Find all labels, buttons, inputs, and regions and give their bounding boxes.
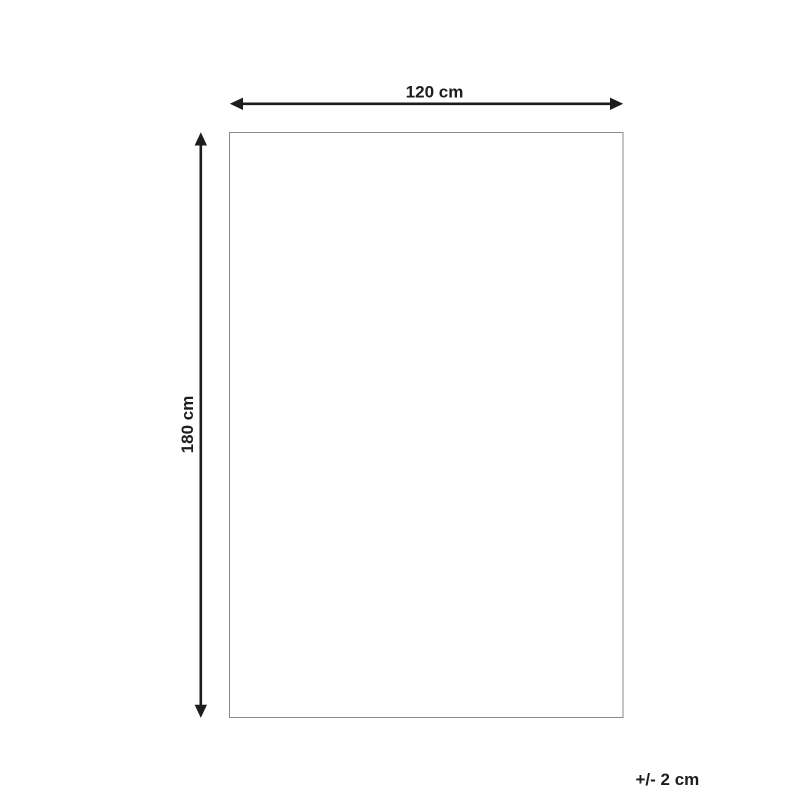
svg-text:120 cm: 120 cm [406, 83, 464, 102]
svg-text:+/- 2 cm: +/- 2 cm [636, 770, 700, 789]
svg-text:180 cm: 180 cm [178, 396, 197, 454]
